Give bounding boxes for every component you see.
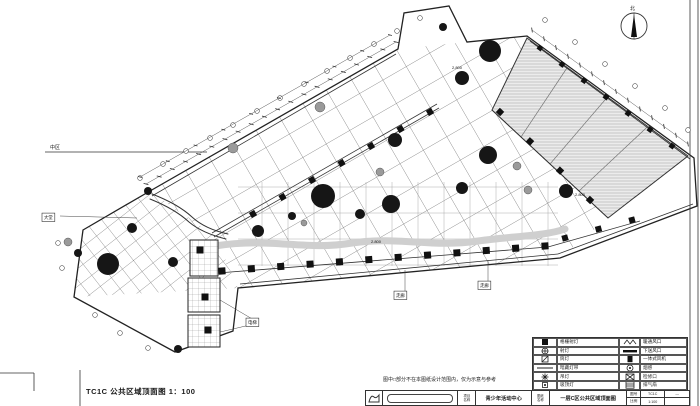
grid-line bbox=[0, 0, 504, 86]
grid-line bbox=[0, 0, 80, 406]
grid-bubble bbox=[633, 84, 638, 89]
dimension-tick bbox=[592, 71, 593, 76]
drawing-caption: TC1C 公共区域顶面图 1：100 bbox=[86, 386, 195, 397]
column-square bbox=[453, 249, 460, 256]
grid-line bbox=[0, 0, 305, 406]
column-circle bbox=[168, 257, 178, 267]
column-square bbox=[424, 251, 431, 258]
dimension-tick bbox=[275, 109, 280, 110]
annotation-text: 2.800 bbox=[452, 65, 463, 70]
blank-cell bbox=[665, 398, 689, 405]
dimension-tick bbox=[157, 176, 162, 177]
dimension-tick bbox=[380, 49, 385, 50]
hatched-out-of-scope-area bbox=[492, 38, 688, 218]
grid-bubble bbox=[573, 40, 578, 45]
dimension-tick bbox=[640, 106, 641, 111]
annotation-text: 2.800 bbox=[371, 239, 382, 244]
grid-line bbox=[0, 156, 95, 406]
dimension-tick bbox=[315, 86, 320, 87]
grid-line bbox=[0, 0, 513, 97]
grid-line bbox=[0, 0, 592, 406]
grid-line bbox=[0, 0, 556, 152]
sq-diag-legend-icon bbox=[533, 355, 557, 364]
grid-bubble bbox=[418, 16, 423, 21]
grid-line bbox=[0, 18, 272, 406]
column-square bbox=[336, 258, 343, 265]
grid-line bbox=[0, 36, 250, 406]
dimension-tick bbox=[194, 145, 198, 146]
annotation-text: 电梯 bbox=[248, 319, 257, 326]
grid-line bbox=[0, 61, 217, 406]
scope-note: 图中□部分不在本图纸设计范围内，仅为示意与参考 bbox=[383, 376, 496, 383]
column-square bbox=[306, 260, 313, 267]
grid-line bbox=[0, 53, 228, 406]
leader-line bbox=[220, 300, 254, 320]
dimension-tick bbox=[360, 50, 364, 51]
sheet-no-label: 图号 bbox=[627, 391, 641, 398]
grid-line bbox=[0, 0, 504, 406]
dimension-tick bbox=[183, 161, 188, 162]
grid-line bbox=[0, 0, 493, 406]
dimension-tick bbox=[580, 63, 581, 68]
corridor-curve bbox=[152, 194, 228, 234]
sheet-no-value: TC1C bbox=[641, 391, 665, 398]
legend-table: 格栅射灯暖通风口射灯下送风口筒灯一体式风机暗藏灯带烟感吊灯检修口吸顶灯排气扇 bbox=[532, 337, 688, 391]
dimension-tick bbox=[170, 168, 175, 169]
grid-line bbox=[0, 70, 206, 406]
grid-line bbox=[0, 0, 559, 406]
grid-bubble bbox=[118, 331, 123, 336]
dimension-tick bbox=[652, 115, 653, 120]
grid-line bbox=[0, 0, 126, 406]
annotation-text: 大堂 bbox=[44, 214, 53, 221]
project-name: 青少年活动中心 bbox=[476, 391, 532, 405]
annotation-text: 走廊 bbox=[396, 292, 405, 299]
light-circle bbox=[524, 186, 532, 194]
grid-line bbox=[0, 27, 261, 406]
scale-label: 比例 bbox=[627, 398, 641, 405]
legend-label: 一体式风机 bbox=[640, 355, 687, 364]
grid-line bbox=[0, 0, 267, 406]
dimension-tick bbox=[568, 54, 569, 59]
leader-line bbox=[60, 216, 137, 218]
column-circle bbox=[311, 184, 335, 208]
dimension-tick bbox=[604, 80, 605, 85]
grid-line bbox=[0, 0, 700, 57]
circle-dot-legend-icon bbox=[619, 364, 640, 373]
company-name-cell bbox=[383, 391, 459, 405]
column-circle bbox=[355, 209, 365, 219]
dimension-tick bbox=[236, 131, 241, 132]
grid-bubble bbox=[686, 128, 691, 133]
dimension-tick bbox=[221, 129, 225, 130]
column-square bbox=[541, 242, 548, 249]
light-circle bbox=[315, 102, 325, 112]
grid-line bbox=[0, 0, 337, 406]
grid-bubble bbox=[543, 18, 548, 23]
shaft-column bbox=[205, 327, 212, 334]
column-square bbox=[561, 234, 568, 241]
star-legend-icon bbox=[533, 372, 557, 381]
dimension-tick bbox=[301, 94, 306, 95]
grid-bubble bbox=[60, 266, 65, 271]
grid-line bbox=[0, 0, 603, 406]
dimension-tick bbox=[616, 89, 617, 94]
grid-line bbox=[0, 139, 118, 406]
grid-line bbox=[0, 0, 521, 108]
dimension-tick bbox=[532, 28, 533, 33]
column-square bbox=[365, 256, 372, 263]
corridor-curve bbox=[215, 229, 565, 246]
light-circle bbox=[513, 162, 521, 170]
annotation-text: 北 bbox=[630, 5, 635, 12]
grid-line bbox=[0, 0, 537, 406]
light-circle bbox=[64, 238, 72, 246]
legend-label: 暗藏灯带 bbox=[557, 364, 619, 373]
legend-label: 烟感 bbox=[640, 364, 687, 373]
grid-line bbox=[0, 165, 84, 406]
column-circle bbox=[455, 71, 469, 85]
grid-line bbox=[0, 0, 150, 406]
grid-line bbox=[0, 0, 338, 406]
light-circle bbox=[301, 220, 307, 226]
company-name-pill bbox=[387, 394, 453, 403]
dimension-tick bbox=[328, 79, 333, 80]
grid-line bbox=[0, 0, 700, 81]
grid-line bbox=[0, 10, 283, 406]
grid-bubble bbox=[663, 106, 668, 111]
grid-line bbox=[0, 0, 594, 406]
column-square bbox=[248, 265, 255, 272]
dimension-tick bbox=[166, 161, 170, 162]
column-circle bbox=[174, 345, 182, 353]
grid-bubble bbox=[603, 62, 608, 67]
hatch-polygon bbox=[492, 38, 688, 218]
dimension-tick bbox=[394, 41, 399, 42]
grid-line bbox=[0, 0, 515, 406]
shaft-rect bbox=[190, 240, 218, 276]
column-circle bbox=[144, 187, 152, 195]
grid-line bbox=[0, 191, 51, 406]
grid-line bbox=[0, 225, 7, 406]
dimension-tick bbox=[223, 138, 228, 139]
dimension-tick bbox=[664, 124, 665, 129]
column-circle bbox=[127, 223, 137, 233]
legend-label: 暖通风口 bbox=[640, 338, 687, 347]
wall-line bbox=[548, 221, 640, 247]
grid-line bbox=[0, 0, 452, 19]
rect-x-legend-icon bbox=[619, 372, 640, 381]
grid-line bbox=[0, 0, 469, 41]
dimension-tick bbox=[688, 142, 689, 147]
scale-value: 1:100 bbox=[641, 398, 665, 405]
grid-line bbox=[0, 0, 526, 406]
grid-line bbox=[0, 79, 195, 406]
dimension-tick bbox=[388, 34, 392, 35]
grid-line bbox=[0, 0, 477, 406]
legend-label: 排气扇 bbox=[640, 381, 687, 390]
dimension-tick bbox=[628, 98, 629, 103]
dimension-tick bbox=[333, 66, 337, 67]
grid-bubble bbox=[146, 346, 151, 351]
dimension-tick bbox=[144, 183, 149, 184]
column-circle bbox=[479, 40, 501, 62]
sheet-info-grid: 图号 TC1C — 比例 1:100 bbox=[627, 391, 689, 405]
column-circle bbox=[382, 195, 400, 213]
column-square bbox=[218, 267, 225, 274]
grid-line bbox=[0, 0, 700, 34]
grid-line bbox=[0, 0, 360, 406]
rect-lines-legend-icon bbox=[619, 381, 640, 390]
legend-label: 吸顶灯 bbox=[557, 381, 619, 390]
sq-filled-legend-icon bbox=[533, 338, 557, 347]
column-circle bbox=[559, 184, 573, 198]
grid-line bbox=[0, 113, 151, 406]
dimension-tick bbox=[556, 45, 557, 50]
dimension-tick bbox=[196, 153, 201, 154]
column-circle bbox=[479, 146, 497, 164]
grid-line bbox=[0, 87, 184, 406]
grid-line bbox=[0, 0, 173, 406]
company-logo bbox=[366, 391, 383, 405]
grid-line bbox=[0, 0, 501, 406]
grid-line bbox=[0, 0, 197, 406]
grid-line bbox=[0, 0, 570, 406]
grid-line bbox=[0, 0, 478, 53]
column-circle bbox=[456, 182, 468, 194]
project-label-cell: 项目 名称 bbox=[458, 391, 476, 405]
drawing-label-cell: 图纸 名称 bbox=[532, 391, 550, 405]
grid-line bbox=[0, 0, 314, 406]
grid-line bbox=[0, 0, 56, 406]
dimension-tick bbox=[341, 71, 346, 72]
column-square bbox=[394, 254, 401, 261]
shaft-column bbox=[202, 294, 209, 301]
wall-line bbox=[212, 104, 437, 233]
legend-label: 检修口 bbox=[640, 372, 687, 381]
grid-line bbox=[0, 217, 18, 406]
drawing-name: 一层C区公共区域顶面图 bbox=[550, 391, 628, 405]
circle-cross-legend-icon bbox=[533, 347, 557, 356]
north-arrow-needle bbox=[631, 14, 637, 37]
grid-line bbox=[0, 173, 73, 406]
rect-filled-legend-icon bbox=[619, 355, 640, 364]
grid-line bbox=[0, 0, 220, 406]
annotation-text: 2.800 bbox=[575, 192, 586, 197]
column-circle bbox=[252, 225, 264, 237]
column-square bbox=[595, 225, 602, 232]
dimension-tick bbox=[249, 113, 253, 114]
dimension-tick bbox=[354, 64, 359, 65]
column-circle bbox=[74, 249, 82, 257]
column-circle bbox=[288, 212, 296, 220]
grid-line bbox=[0, 0, 290, 406]
grid-line bbox=[0, 1, 294, 406]
dimension-tick bbox=[676, 133, 677, 138]
light-circle bbox=[228, 143, 238, 153]
annotation-text: 走廊 bbox=[480, 282, 489, 289]
grid-bubble bbox=[395, 29, 400, 34]
grid-line bbox=[0, 0, 461, 30]
thick-line-legend-icon bbox=[619, 347, 640, 356]
grid-bubble bbox=[56, 241, 61, 246]
drawing-label-bottom: 名称 bbox=[537, 398, 544, 402]
column-circle bbox=[439, 23, 447, 31]
title-block-strip: 项目 名称 青少年活动中心 图纸 名称 一层C区公共区域顶面图 图号 TC1C … bbox=[365, 390, 690, 406]
grid-line bbox=[0, 0, 10, 406]
project-label-bottom: 名称 bbox=[463, 398, 470, 402]
grid-line bbox=[0, 148, 107, 406]
annotation-text: 中区 bbox=[50, 144, 60, 151]
grid-line bbox=[0, 0, 33, 406]
legend-label: 下送风口 bbox=[640, 347, 687, 356]
legend-label: 吊灯 bbox=[557, 372, 619, 381]
dimension-tick bbox=[367, 56, 372, 57]
shaft-column bbox=[197, 247, 204, 254]
grid-line bbox=[0, 0, 530, 119]
grid-line bbox=[0, 0, 360, 406]
grid-line bbox=[0, 0, 316, 406]
legend-label: 射灯 bbox=[557, 347, 619, 356]
dimension-tick bbox=[544, 36, 545, 41]
wall-line bbox=[558, 204, 693, 254]
zigzag-legend-icon bbox=[619, 338, 640, 347]
grid-line bbox=[0, 0, 444, 8]
date-value: — bbox=[665, 391, 689, 398]
grid-bubble bbox=[93, 313, 98, 318]
dimension-line bbox=[140, 35, 390, 177]
grid-line bbox=[0, 0, 487, 64]
grid-line bbox=[0, 0, 349, 406]
dimension-tick bbox=[262, 116, 267, 117]
column-circle bbox=[388, 133, 402, 147]
dimension-line bbox=[146, 42, 396, 184]
dimension-tick bbox=[249, 124, 254, 125]
grid-line bbox=[0, 0, 700, 11]
grid-line bbox=[0, 208, 29, 406]
grid-line bbox=[0, 96, 173, 406]
grid-line bbox=[0, 0, 471, 406]
sq-dot-legend-icon bbox=[533, 381, 557, 390]
shaft-rect bbox=[188, 315, 220, 347]
line-legend-icon bbox=[533, 364, 557, 373]
logo-icon bbox=[368, 393, 380, 403]
legend-label: 格栅射灯 bbox=[557, 338, 619, 347]
grid-line bbox=[0, 0, 482, 406]
legend-label: 筒灯 bbox=[557, 355, 619, 364]
column-circle bbox=[97, 253, 119, 275]
grid-line bbox=[0, 0, 495, 75]
grid-line bbox=[0, 0, 103, 406]
light-circle bbox=[376, 168, 384, 176]
column-square bbox=[483, 247, 490, 254]
dimension-tick bbox=[209, 146, 214, 147]
dimension-tick bbox=[288, 101, 293, 102]
column-square bbox=[277, 263, 284, 270]
column-square bbox=[512, 245, 519, 252]
